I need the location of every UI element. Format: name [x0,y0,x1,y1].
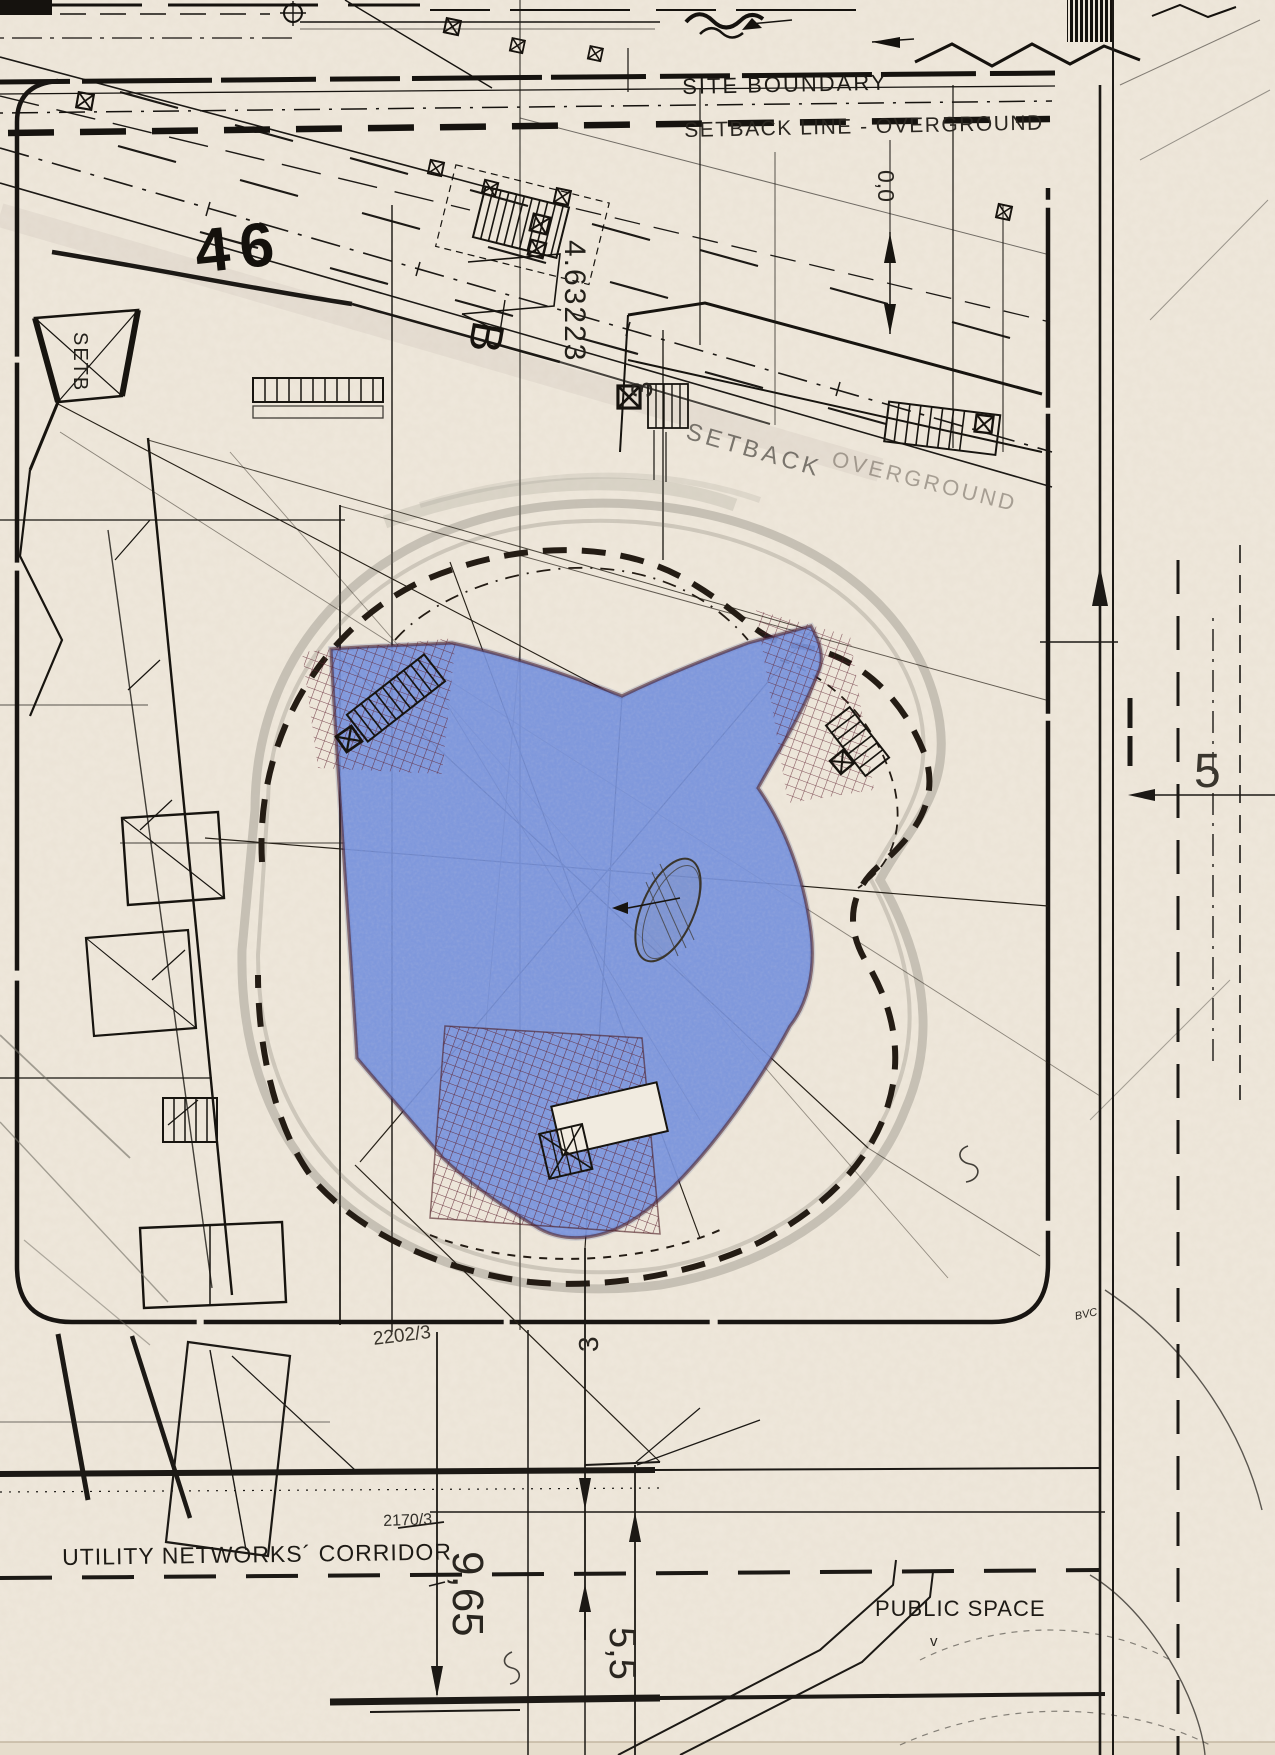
site-boundary-label: SITE BOUNDARY [682,72,888,98]
dimension-5-right: 5 [1194,748,1221,796]
plot-number-2170: 2170/3 [383,1512,432,1530]
public-space-mark: v [930,1634,938,1649]
dimension-3-upper: 3 [628,381,658,398]
dimension-463223: 4.63223 [559,240,589,362]
plan-linework [0,0,1275,1755]
dimension-5-5: 5,5 [603,1627,641,1680]
setb-left-label: SETB [70,332,90,392]
dimension-0-0: 0,0 [874,170,897,202]
public-space-label: PUBLIC SPACE [875,1598,1046,1620]
plot-number-46: 46 [192,213,287,284]
site-plan-sketch: SITE BOUNDARY SETBACK LINE - OVERGROUND … [0,0,1275,1755]
utility-corridor-label: UTILITY NETWORKS´ CORRIDOR [62,1541,452,1569]
dimension-3-lower: 3 [575,1336,603,1352]
